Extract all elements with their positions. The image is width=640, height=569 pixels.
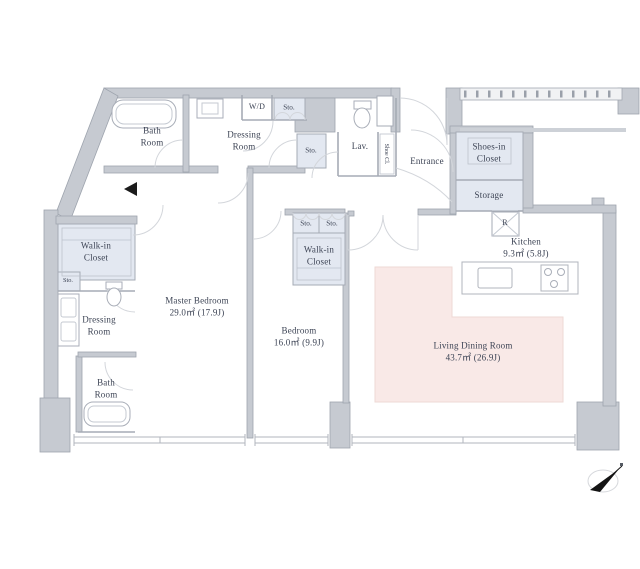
stove-icon [541, 265, 568, 291]
vanity-icon [58, 294, 79, 346]
north-arrow-icon [588, 463, 623, 492]
washer-icon [197, 99, 223, 118]
window-lines [74, 434, 575, 446]
bathtub-bottom-icon [84, 402, 130, 426]
entry-marker-icon [124, 182, 137, 196]
toilet-dressing-icon [106, 282, 122, 306]
toilet-lav-icon [354, 101, 371, 128]
sink-icon [478, 268, 512, 288]
floorplan-drawing [0, 0, 640, 569]
bathtub-top-icon [112, 100, 176, 128]
refrigerator-box [492, 212, 519, 236]
kitchen-counter [462, 262, 578, 294]
floorplan-page: Bath Room Dressing Room W/D Sto. Sto. La… [0, 0, 640, 569]
alcove-window [460, 88, 622, 100]
